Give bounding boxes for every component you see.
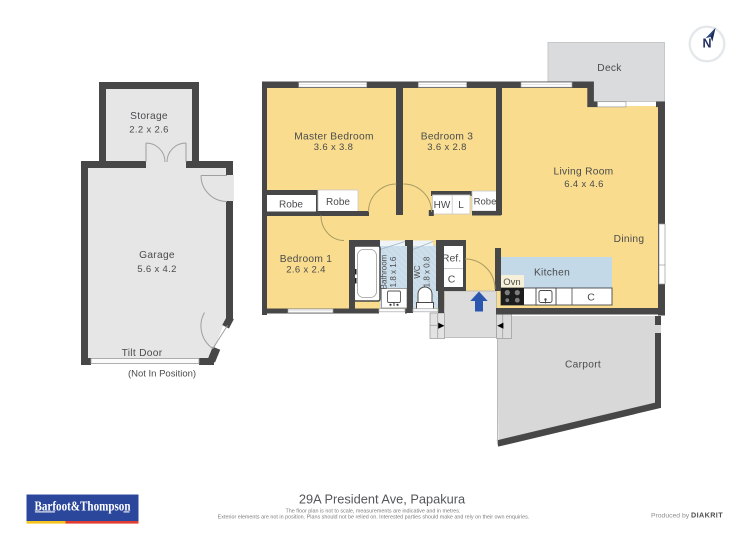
svg-text:Robe: Robe [326, 197, 350, 208]
svg-text:Exterior elements are not in p: Exterior elements are not in position. P… [218, 515, 530, 521]
svg-text:Storage: Storage [130, 111, 168, 122]
svg-text:HW: HW [434, 200, 451, 211]
svg-text:3.6 x 3.8: 3.6 x 3.8 [314, 142, 354, 153]
svg-text:L: L [458, 200, 464, 211]
svg-text:The floor plan is not to scale: The floor plan is not to scale, measurem… [286, 508, 461, 514]
svg-text:WC: WC [413, 265, 422, 279]
svg-text:Tilt Door: Tilt Door [122, 348, 163, 359]
svg-text:Ref.: Ref. [442, 253, 461, 265]
svg-text:Bathroom: Bathroom [380, 254, 389, 289]
svg-text:Ovn: Ovn [503, 277, 520, 288]
svg-text:Living Room: Living Room [554, 167, 614, 178]
svg-text:Carport: Carport [565, 359, 601, 370]
svg-text:6.4 x 4.6: 6.4 x 4.6 [564, 179, 604, 190]
svg-text:(Not In Position): (Not In Position) [128, 369, 196, 380]
svg-text:Barfoot&Thompson: Barfoot&Thompson [35, 499, 131, 514]
svg-text:Kitchen: Kitchen [534, 267, 570, 278]
svg-text:Garage: Garage [139, 250, 175, 261]
svg-text:Robe: Robe [474, 197, 497, 208]
svg-text:2.2 x 2.6: 2.2 x 2.6 [129, 125, 169, 136]
svg-text:C: C [448, 274, 456, 286]
svg-text:Bedroom 1: Bedroom 1 [280, 254, 333, 265]
svg-text:1.8 x 0.8: 1.8 x 0.8 [423, 256, 432, 287]
svg-text:Bedroom 3: Bedroom 3 [421, 132, 474, 143]
svg-text:2.6 x 2.4: 2.6 x 2.4 [286, 265, 326, 276]
svg-text:29A President Ave, Papakura: 29A President Ave, Papakura [299, 492, 466, 507]
svg-text:1.8 x 1.6: 1.8 x 1.6 [389, 256, 398, 287]
svg-text:3.6 x 2.8: 3.6 x 2.8 [427, 142, 467, 153]
svg-text:Deck: Deck [597, 63, 622, 74]
svg-text:Dining: Dining [614, 234, 645, 245]
svg-text:Master Bedroom: Master Bedroom [294, 132, 374, 143]
svg-text:Produced by DIAKRIT: Produced by DIAKRIT [651, 511, 723, 520]
svg-text:N: N [702, 37, 711, 51]
svg-text:5.6 x 4.2: 5.6 x 4.2 [137, 264, 177, 275]
svg-text:C: C [587, 292, 595, 304]
svg-text:Robe: Robe [279, 200, 303, 211]
